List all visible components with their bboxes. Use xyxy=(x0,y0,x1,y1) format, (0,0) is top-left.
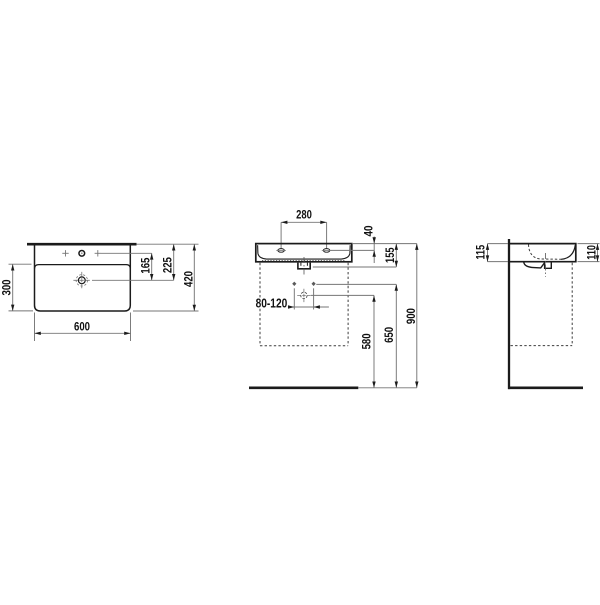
svg-text:650: 650 xyxy=(382,327,396,343)
svg-text:110: 110 xyxy=(585,245,599,260)
svg-text:40: 40 xyxy=(361,225,375,236)
svg-text:600: 600 xyxy=(74,320,90,334)
svg-text:900: 900 xyxy=(404,308,418,324)
svg-text:300: 300 xyxy=(0,279,14,295)
svg-text:155: 155 xyxy=(383,247,397,263)
svg-text:420: 420 xyxy=(181,271,195,287)
svg-text:115: 115 xyxy=(474,245,488,260)
svg-text:80-120: 80-120 xyxy=(256,295,288,310)
svg-text:225: 225 xyxy=(160,257,174,273)
svg-text:165: 165 xyxy=(139,258,153,274)
svg-text:580: 580 xyxy=(360,333,374,349)
svg-text:280: 280 xyxy=(296,208,312,222)
